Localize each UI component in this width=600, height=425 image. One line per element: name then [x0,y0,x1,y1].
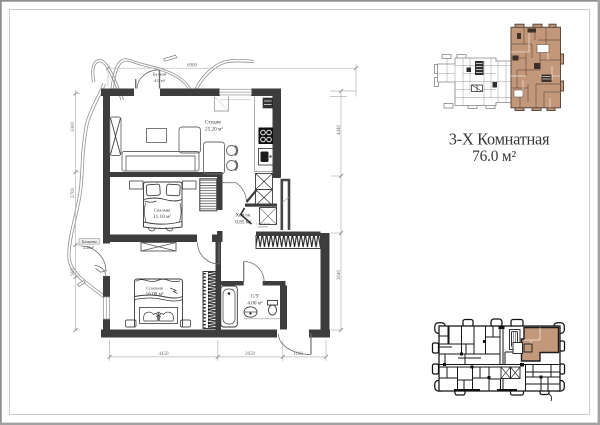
svg-text:4.00 м²: 4.00 м² [247,301,263,307]
svg-text:11.10 м²: 11.10 м² [153,214,171,220]
svg-text:4440: 4440 [337,125,342,136]
svg-text:Балконы: Балконы [82,239,97,244]
svg-text:Спальня: Спальня [146,286,163,291]
svg-text:2.20м²: 2.20м² [83,245,95,250]
svg-text:6900: 6900 [187,64,198,69]
svg-text:16.00 м²: 16.00 м² [146,292,164,298]
svg-text:25.20 м²: 25.20 м² [205,127,223,133]
svg-text:2700: 2700 [71,188,76,199]
svg-text:3040: 3040 [337,270,342,281]
svg-text:4.0 м²: 4.0 м² [154,78,166,83]
svg-text:Балкон: Балкон [153,72,167,77]
svg-text:3-Х Комнатная: 3-Х Комнатная [449,130,550,149]
svg-text:76.0 м²: 76.0 м² [472,148,516,165]
svg-text:Студия: Студия [205,120,221,126]
svg-text:Спальня: Спальня [154,208,171,213]
svg-text:машина: машина [258,226,268,229]
svg-text:900: 900 [71,268,76,276]
svg-text:2650: 2650 [245,352,256,357]
svg-text:С/У: С/У [251,294,260,300]
svg-text:3300: 3300 [71,122,76,133]
svg-text:4450: 4450 [159,352,170,357]
